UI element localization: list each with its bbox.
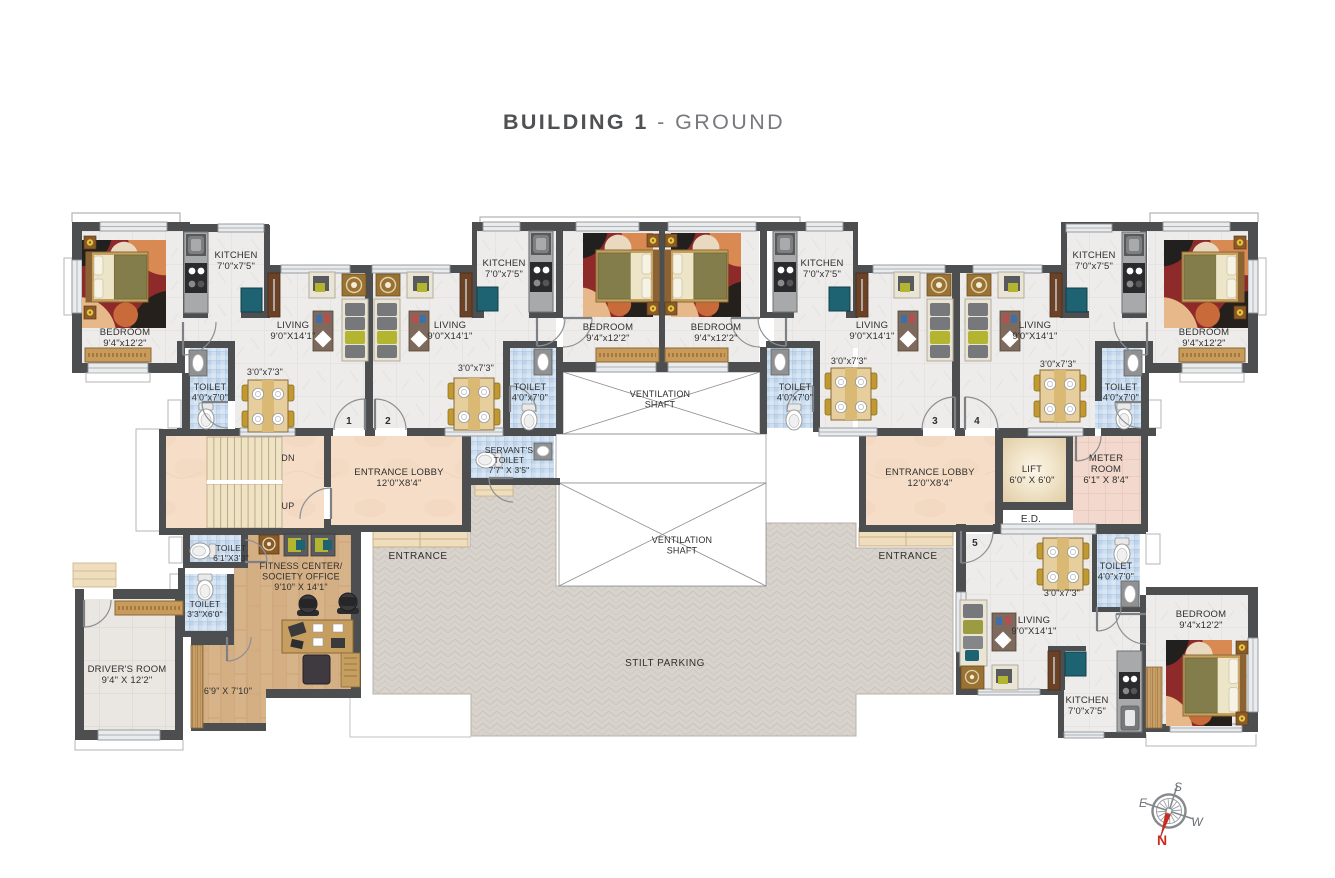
- svg-text:3'0"x7'3": 3'0"x7'3": [247, 367, 283, 377]
- svg-text:BEDROOM9'4"x12'2": BEDROOM9'4"x12'2": [1179, 327, 1230, 349]
- svg-text:TOILET4'0"x7'0": TOILET4'0"x7'0": [1098, 561, 1134, 582]
- svg-text:TOILET6'1"X3'3": TOILET6'1"X3'3": [213, 543, 249, 563]
- svg-text:TOILET3'3"X6'0": TOILET3'3"X6'0": [187, 599, 223, 619]
- svg-text:W: W: [1191, 815, 1204, 829]
- svg-text:TOILET4'0"x7'0": TOILET4'0"x7'0": [192, 382, 228, 403]
- svg-text:BEDROOM9'4"x12'2": BEDROOM9'4"x12'2": [691, 322, 742, 344]
- svg-text:S: S: [1174, 780, 1182, 794]
- svg-text:TOILET4'0"x7'0": TOILET4'0"x7'0": [512, 382, 548, 403]
- svg-text:2: 2: [385, 416, 391, 427]
- svg-text:KITCHEN7'0"x7'5": KITCHEN7'0"x7'5": [800, 258, 843, 280]
- svg-text:BUILDING 1 - GROUND: BUILDING 1 - GROUND: [503, 110, 785, 134]
- svg-text:3'0"x7'3": 3'0"x7'3": [458, 363, 494, 373]
- svg-text:TOILET4'0"x7'0": TOILET4'0"x7'0": [1103, 382, 1139, 403]
- svg-text:6'9" X 7'10": 6'9" X 7'10": [204, 686, 252, 696]
- svg-text:E: E: [1139, 796, 1148, 810]
- svg-text:LIVING9'0"X14'1": LIVING9'0"X14'1": [1012, 320, 1057, 342]
- svg-text:KITCHEN7'0"x7'5": KITCHEN7'0"x7'5": [214, 250, 257, 272]
- svg-text:5: 5: [972, 538, 978, 549]
- svg-text:UP: UP: [282, 501, 295, 511]
- svg-text:3'0"x7'3": 3'0"x7'3": [1040, 359, 1076, 369]
- svg-text:LIVING9'0"X14'1": LIVING9'0"X14'1": [270, 320, 315, 342]
- svg-text:N: N: [1157, 832, 1167, 848]
- svg-text:3: 3: [932, 416, 938, 427]
- svg-text:ENTRANCE: ENTRANCE: [878, 551, 937, 562]
- svg-text:3'0"x7'3": 3'0"x7'3": [831, 356, 867, 366]
- svg-text:1: 1: [346, 416, 352, 427]
- svg-text:BEDROOM9'4"x12'2": BEDROOM9'4"x12'2": [1176, 609, 1227, 631]
- svg-text:STILT PARKING: STILT PARKING: [625, 658, 705, 669]
- svg-text:KITCHEN7'0"x7'5": KITCHEN7'0"x7'5": [1072, 250, 1115, 272]
- svg-text:TOILET4'0"x7'0": TOILET4'0"x7'0": [777, 382, 813, 403]
- svg-text:4: 4: [974, 416, 980, 427]
- svg-text:ENTRANCE: ENTRANCE: [388, 551, 447, 562]
- svg-text:LIVING9'0"X14'1": LIVING9'0"X14'1": [427, 320, 472, 342]
- svg-text:DN: DN: [281, 453, 294, 463]
- svg-text:KITCHEN7'0"x7'5": KITCHEN7'0"x7'5": [482, 258, 525, 280]
- svg-text:LIVING9'0"X14'1": LIVING9'0"X14'1": [1011, 615, 1056, 637]
- svg-text:LIVING9'0"X14'1": LIVING9'0"X14'1": [849, 320, 894, 342]
- svg-text:BEDROOM9'4"x12'2": BEDROOM9'4"x12'2": [100, 327, 151, 349]
- svg-text:E.D.: E.D.: [1021, 514, 1041, 525]
- svg-text:BEDROOM9'4"x12'2": BEDROOM9'4"x12'2": [583, 322, 634, 344]
- svg-text:3'0"x7'3": 3'0"x7'3": [1044, 588, 1080, 598]
- svg-text:KITCHEN7'0"x7'5": KITCHEN7'0"x7'5": [1065, 695, 1108, 717]
